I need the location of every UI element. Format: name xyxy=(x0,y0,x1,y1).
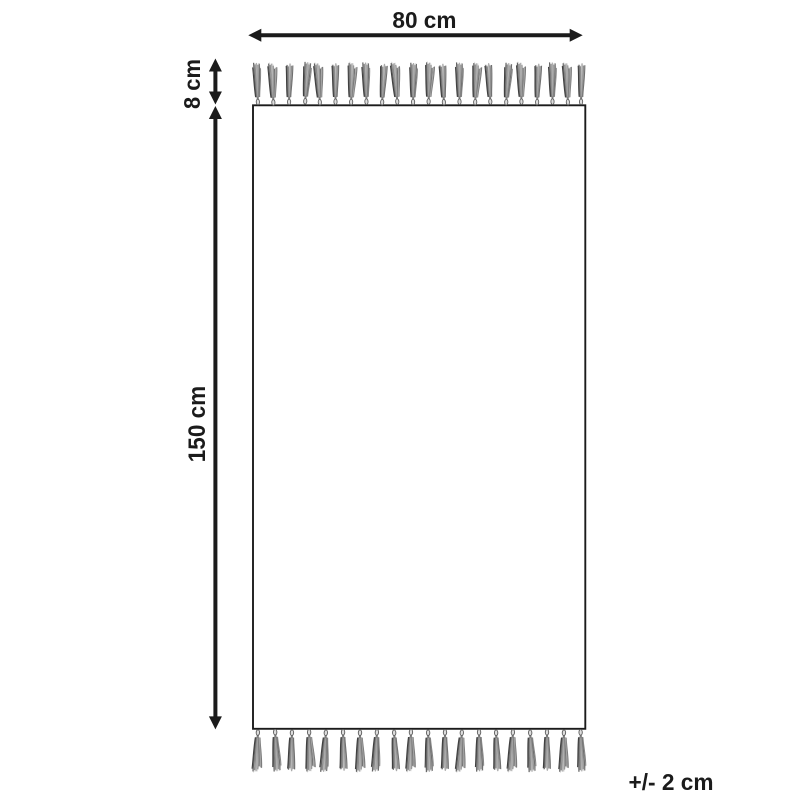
svg-text:150 cm: 150 cm xyxy=(184,386,211,463)
svg-text:80 cm: 80 cm xyxy=(392,7,456,33)
svg-text:+/- 2 cm: +/- 2 cm xyxy=(629,769,714,795)
svg-text:8 cm: 8 cm xyxy=(179,59,205,109)
